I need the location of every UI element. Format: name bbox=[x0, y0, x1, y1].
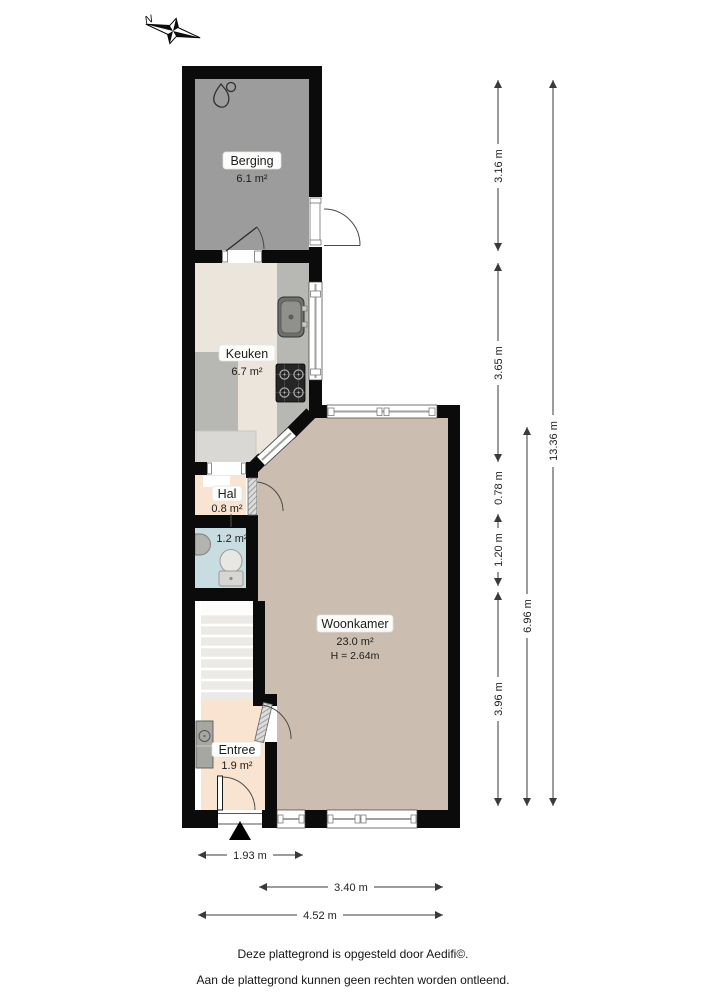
dim-3-16: 3.16 m bbox=[493, 149, 505, 183]
kitchen-window bbox=[309, 282, 322, 380]
floor-plan-drawing: Berging 6.1 m² Keuken 6.7 m² Hal 0.8 m² … bbox=[0, 0, 707, 1000]
woonkamer-floor bbox=[258, 418, 448, 810]
woonkamer-height: H = 2.64m bbox=[331, 650, 380, 662]
berging-exterior-door bbox=[309, 197, 360, 247]
counter-left bbox=[195, 352, 238, 431]
dim-4-52: 4.52 m bbox=[303, 910, 337, 922]
stove-icon bbox=[276, 364, 305, 402]
hal-area: 0.8 m² bbox=[211, 503, 243, 515]
stairs bbox=[201, 601, 253, 700]
dim-3-96: 3.96 m bbox=[493, 682, 505, 716]
kitchen-appliance bbox=[196, 431, 256, 464]
floor-plan-page: Berging 6.1 m² Keuken 6.7 m² Hal 0.8 m² … bbox=[0, 0, 707, 1000]
dim-1-20: 1.20 m bbox=[493, 533, 505, 567]
dim-3-40: 3.40 m bbox=[334, 882, 368, 894]
entree-label: Entree bbox=[219, 743, 256, 757]
berging-area: 6.1 m² bbox=[236, 173, 268, 185]
berging-label: Berging bbox=[230, 154, 273, 168]
footer-credit: Deze plattegrond is opgesteld door Aedif… bbox=[238, 947, 469, 961]
hal-label: Hal bbox=[218, 487, 237, 501]
woonkamer-label: Woonkamer bbox=[321, 617, 388, 631]
footer: Deze plattegrond is opgesteld door Aedif… bbox=[197, 947, 510, 987]
toilet-icon bbox=[219, 550, 243, 587]
entree-area: 1.9 m² bbox=[221, 760, 253, 772]
woonkamer-area: 23.0 m² bbox=[336, 636, 374, 648]
meter-cupboard-icon bbox=[196, 721, 213, 768]
livingroom-top-window bbox=[327, 405, 437, 418]
footer-disclaimer: Aan de plattegrond kunnen geen rechten w… bbox=[197, 973, 510, 987]
livingroom-bottom-window-small bbox=[277, 810, 305, 828]
dim-1-93: 1.93 m bbox=[233, 850, 267, 862]
dim-6-96: 6.96 m bbox=[522, 599, 534, 633]
sink-icon bbox=[278, 297, 307, 337]
dim-0-78: 0.78 m bbox=[493, 471, 505, 505]
keuken-label: Keuken bbox=[226, 347, 268, 361]
keuken-area: 6.7 m² bbox=[231, 366, 263, 378]
dimension-lines-bottom: 1.93 m 3.40 m 4.52 m bbox=[198, 848, 443, 922]
dimension-lines-right: 3.16 m 3.65 m 0.78 m 1.20 m 3.96 m 6.96 … bbox=[491, 80, 560, 806]
toilet-area: 1.2 m² bbox=[216, 533, 248, 545]
hal-threshold bbox=[203, 476, 230, 487]
north-label: N bbox=[143, 13, 154, 27]
dim-13-36: 13.36 m bbox=[548, 421, 560, 461]
livingroom-bottom-window-large bbox=[327, 810, 417, 828]
dim-3-65: 3.65 m bbox=[493, 346, 505, 380]
